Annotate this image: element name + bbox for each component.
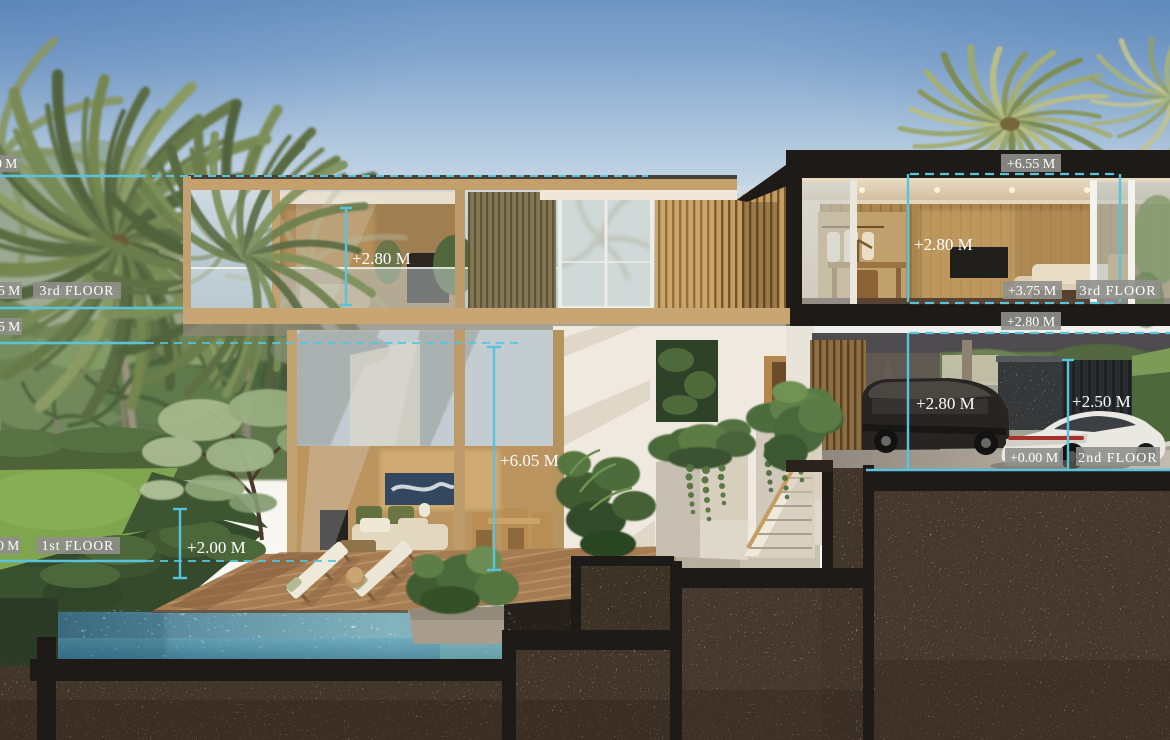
svg-text:+6.05 M: +6.05 M (500, 451, 559, 470)
svg-text:1st FLOOR: 1st FLOOR (42, 538, 114, 553)
svg-text:+2.80 M: +2.80 M (914, 235, 973, 254)
svg-text:+2.95 M: +2.95 M (0, 319, 20, 334)
svg-text:+3.75 M: +3.75 M (1008, 284, 1057, 299)
svg-text:2nd FLOOR: 2nd FLOOR (1078, 451, 1157, 466)
svg-text:3rd FLOOR: 3rd FLOOR (40, 283, 115, 298)
svg-text:3rd FLOOR: 3rd FLOOR (1079, 284, 1156, 299)
svg-text:+0.00 M: +0.00 M (0, 538, 19, 553)
svg-text:+3.75 M: +3.75 M (0, 283, 20, 298)
svg-text:+0.00 M: +0.00 M (1010, 451, 1059, 466)
svg-text:+6.55 M: +6.55 M (1007, 157, 1056, 172)
svg-text:+2.00 M: +2.00 M (187, 538, 246, 557)
svg-text:+9.30 M: +9.30 M (0, 156, 17, 171)
svg-text:+2.80 M: +2.80 M (352, 249, 411, 268)
svg-text:+2.80 M: +2.80 M (916, 394, 975, 413)
svg-text:+2.80 M: +2.80 M (1007, 315, 1056, 330)
svg-text:+2.50 M: +2.50 M (1072, 392, 1131, 411)
